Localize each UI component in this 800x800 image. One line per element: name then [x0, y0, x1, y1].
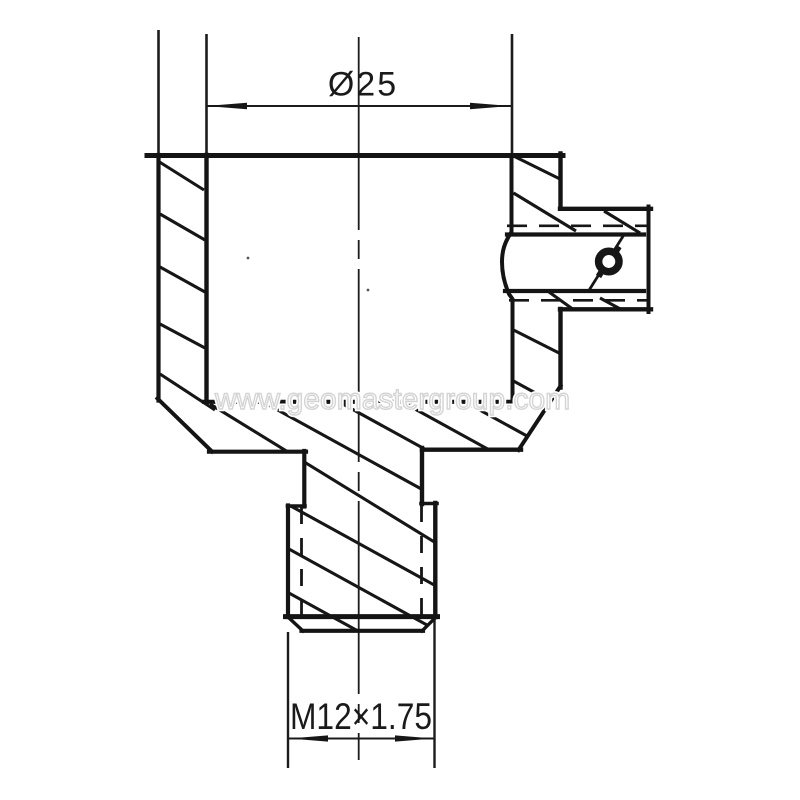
- svg-text:Ø25: Ø25: [328, 66, 398, 104]
- svg-text:M12×1.75: M12×1.75: [290, 696, 432, 737]
- svg-text:www.geomastergroup.com: www.geomastergroup.com: [214, 383, 570, 416]
